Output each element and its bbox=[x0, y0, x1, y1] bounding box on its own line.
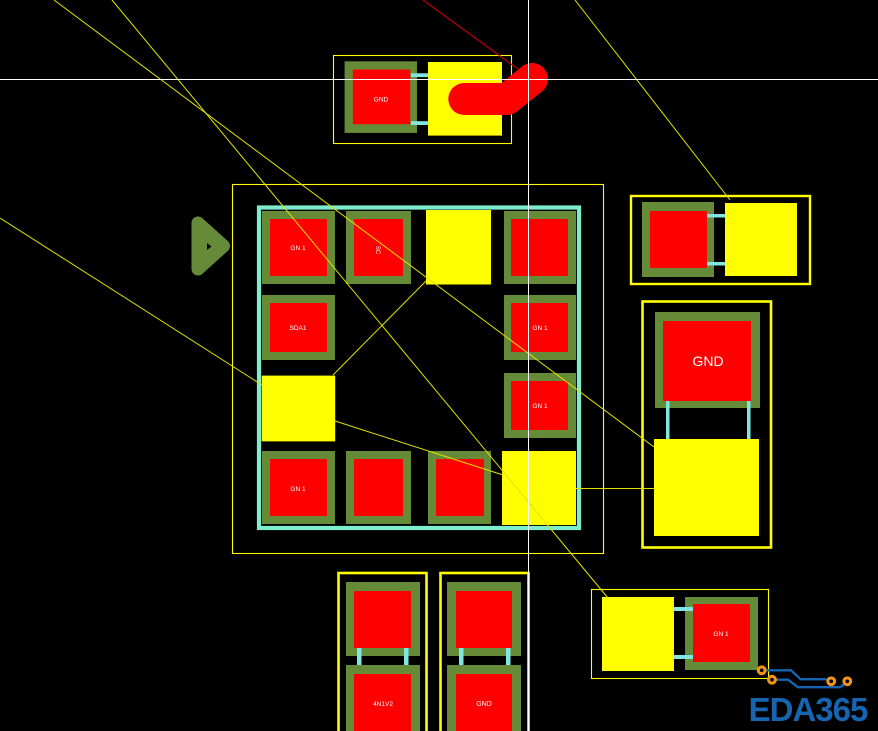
svg-text:SC: SC bbox=[374, 246, 380, 255]
svg-text:EDA365: EDA365 bbox=[749, 691, 868, 728]
svg-text:GN 1: GN 1 bbox=[713, 631, 729, 638]
svg-text:SDA1: SDA1 bbox=[290, 325, 307, 332]
svg-text:GND: GND bbox=[692, 353, 723, 369]
svg-text:GND: GND bbox=[374, 97, 389, 104]
svg-text:GN 1: GN 1 bbox=[532, 325, 548, 332]
svg-text:GN 1: GN 1 bbox=[290, 245, 306, 252]
svg-text:4N1V2: 4N1V2 bbox=[373, 701, 393, 708]
svg-text:GND: GND bbox=[476, 701, 492, 708]
svg-text:GN 1: GN 1 bbox=[290, 486, 306, 493]
svg-text:GN 1: GN 1 bbox=[532, 403, 548, 410]
